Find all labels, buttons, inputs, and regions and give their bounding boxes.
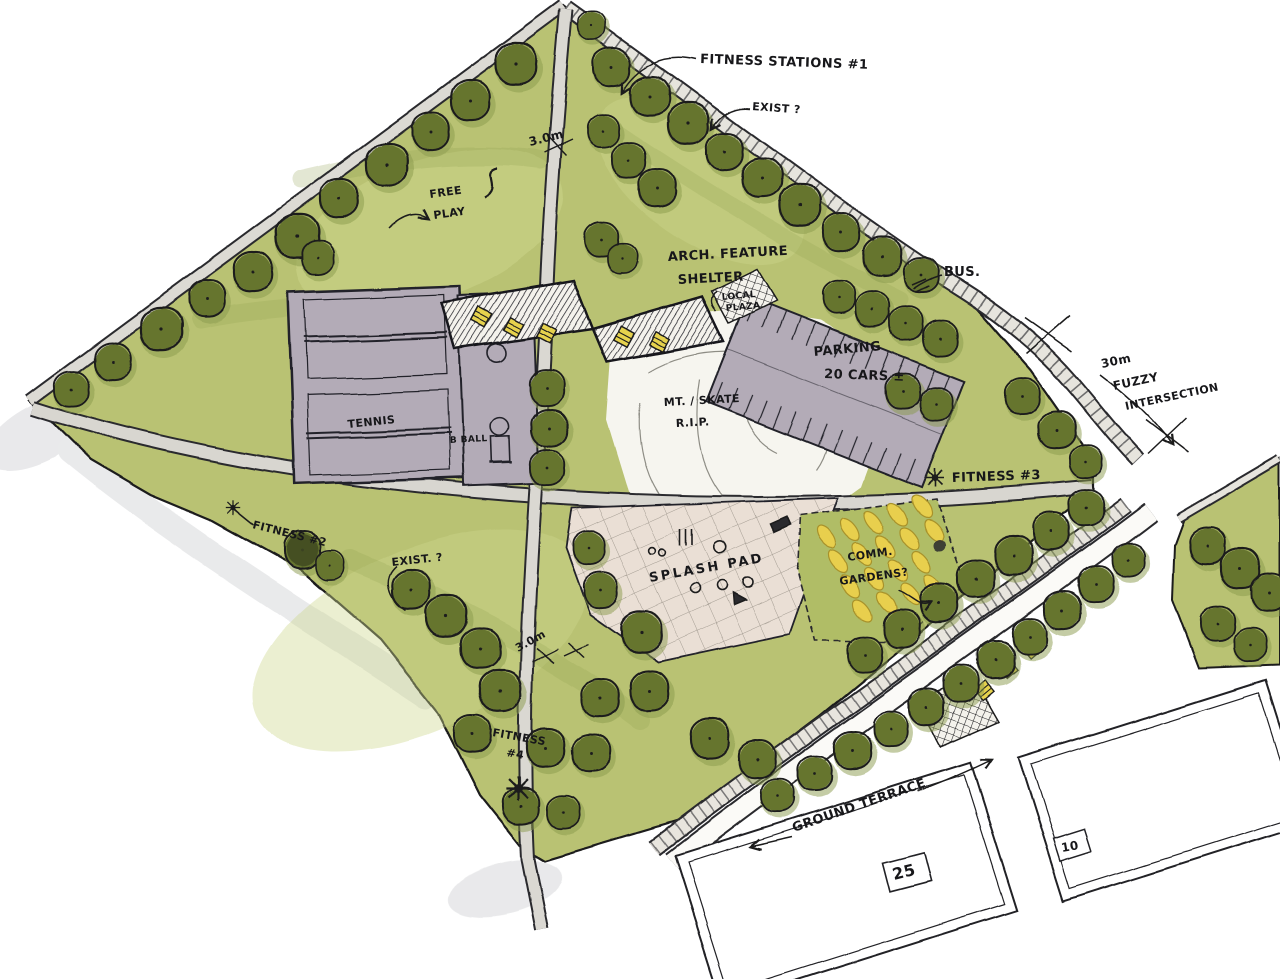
label-fitness-3: FITNESS #3 [952, 468, 1041, 486]
label-parking-2: 20 CARS ± [824, 367, 905, 385]
tree-icon [977, 641, 1020, 685]
tree-icon [944, 666, 985, 708]
tree-icon [1032, 513, 1075, 557]
tree-icon [1111, 543, 1149, 582]
label-exist-north: EXIST ? [752, 100, 801, 116]
tree-icon [1044, 591, 1087, 635]
tree-icon [760, 779, 798, 818]
tree-icon [577, 11, 611, 45]
composter-icon [934, 539, 946, 551]
tree-icon [833, 732, 876, 776]
label-mound-2: R.I.P. [675, 415, 709, 430]
tree-icon [872, 711, 913, 753]
tree-icon [1012, 618, 1053, 660]
label-fuzzy-2: FUZZY [1112, 370, 1160, 393]
fitness-station-icon [506, 776, 530, 800]
label-bus: BUS. [944, 265, 980, 280]
tree-icon [993, 536, 1039, 583]
sketch-canvas: FITNESS STATIONS #1 EXIST ? 3.0m FREE PL… [0, 0, 1280, 979]
tree-icon [1078, 566, 1119, 608]
label-fuzzy-1: 30m [1100, 351, 1133, 371]
tree-icon [796, 756, 837, 798]
building-lot-east [1018, 680, 1280, 901]
label-stall-count-east: 10 [1060, 838, 1080, 855]
tennis-courts [288, 286, 467, 484]
tree-icon [1069, 445, 1107, 484]
fitness-station-icon [926, 469, 944, 487]
tree-icon [1068, 490, 1109, 532]
label-fitness-stations-1: FITNESS STATIONS #1 [700, 52, 869, 73]
tree-icon [903, 258, 944, 300]
label-basketball: B BALL [450, 434, 488, 446]
